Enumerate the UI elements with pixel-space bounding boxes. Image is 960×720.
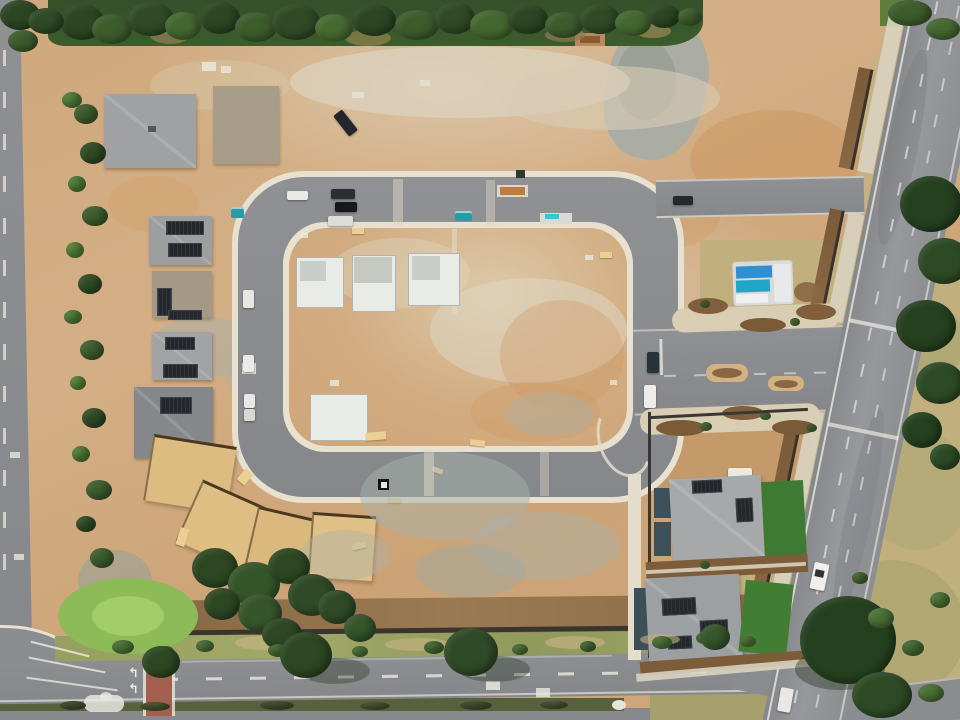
solar-panel xyxy=(165,337,195,350)
tree xyxy=(344,614,376,642)
lumber-pile xyxy=(237,468,254,485)
median-shrub xyxy=(140,702,170,711)
tree xyxy=(142,646,180,678)
median-shrub xyxy=(260,701,294,710)
solar-panel xyxy=(692,479,723,494)
vehicle xyxy=(673,196,693,205)
vehicle xyxy=(243,355,254,372)
shrub xyxy=(86,480,112,500)
tree xyxy=(896,300,956,352)
turn-arrow xyxy=(128,678,144,690)
lane-arrow xyxy=(10,452,20,458)
porta-potty xyxy=(455,211,472,221)
tree xyxy=(435,2,475,34)
gray-wash xyxy=(505,392,595,436)
median-shrub xyxy=(60,701,86,710)
gore-line xyxy=(26,677,117,692)
vehicle xyxy=(647,352,659,373)
lane-arrow xyxy=(14,554,24,560)
lumber-pile xyxy=(366,431,387,440)
shrub xyxy=(62,92,82,108)
shrub xyxy=(76,516,96,532)
debris xyxy=(420,80,430,86)
shrub xyxy=(196,640,214,652)
utility-box xyxy=(516,170,525,178)
concrete-pad xyxy=(310,394,368,441)
debris xyxy=(610,380,617,385)
tree xyxy=(204,588,240,620)
chimney xyxy=(148,126,156,132)
tree xyxy=(615,10,651,36)
house-framing xyxy=(213,86,279,164)
tree xyxy=(444,628,498,676)
site-objects-layer xyxy=(0,0,960,720)
shrub xyxy=(80,142,106,164)
lumber-pile xyxy=(352,228,364,234)
tree xyxy=(165,12,201,40)
shrub xyxy=(90,548,114,568)
shrub xyxy=(66,242,84,258)
shrub xyxy=(918,684,944,702)
shrub xyxy=(112,640,134,654)
shrub xyxy=(82,408,106,428)
tree xyxy=(900,176,960,232)
mulch-mound xyxy=(794,282,820,302)
tree xyxy=(888,0,932,26)
tree xyxy=(200,2,240,34)
debris xyxy=(330,380,339,386)
shrub xyxy=(352,646,368,657)
canopy-panel xyxy=(773,264,791,303)
median-mulch xyxy=(712,368,742,378)
road-stencil xyxy=(486,681,500,690)
debris xyxy=(202,62,216,71)
canopy-stripe-white xyxy=(736,293,768,303)
debris xyxy=(585,255,593,260)
driveway-apron xyxy=(393,179,403,226)
pad-shade xyxy=(354,257,392,283)
tree xyxy=(395,10,439,40)
dry-patch xyxy=(545,636,605,649)
tree xyxy=(92,14,132,44)
solar-panel xyxy=(168,310,202,320)
tree xyxy=(916,362,960,404)
tree xyxy=(902,412,942,448)
mulch-bed xyxy=(796,304,836,320)
shrub xyxy=(868,608,894,628)
vehicle xyxy=(333,109,358,136)
shrub xyxy=(806,424,817,432)
vehicle xyxy=(777,687,794,713)
shrub xyxy=(82,206,108,226)
mulch-bed xyxy=(740,318,786,332)
garage-roof xyxy=(654,522,671,556)
driveway-apron xyxy=(424,449,434,496)
median-nose xyxy=(612,700,626,710)
median-shrub xyxy=(460,701,492,710)
shrub xyxy=(652,636,672,649)
driveway-apron xyxy=(486,180,495,226)
debris xyxy=(300,233,308,238)
shrub xyxy=(72,446,90,462)
painted-island xyxy=(84,695,124,712)
tree xyxy=(648,4,680,28)
tree xyxy=(918,238,960,284)
tree xyxy=(315,14,353,42)
garage-roof xyxy=(654,488,671,518)
shrub xyxy=(70,376,86,390)
shrub xyxy=(68,176,86,192)
solar-panel xyxy=(662,597,697,616)
shrub xyxy=(700,300,710,308)
tree xyxy=(8,30,38,52)
shrub xyxy=(700,422,712,431)
house-roof xyxy=(645,574,743,663)
vehicle xyxy=(244,409,255,421)
shrub xyxy=(852,572,868,584)
solar-panel xyxy=(166,221,204,235)
gray-wash xyxy=(300,530,390,580)
solar-panel xyxy=(735,498,753,523)
tree xyxy=(580,4,620,34)
mulch-bed xyxy=(656,420,706,436)
shrub xyxy=(930,592,950,608)
lawn-patch-light xyxy=(92,596,164,636)
vehicle xyxy=(244,394,255,408)
pad-shade xyxy=(300,261,326,281)
solar-panel xyxy=(163,364,198,378)
tree xyxy=(678,8,702,26)
shrub xyxy=(64,310,82,324)
tree xyxy=(235,12,277,42)
tree xyxy=(852,672,912,718)
tree xyxy=(926,18,960,40)
tree xyxy=(545,12,583,38)
tree xyxy=(272,4,320,40)
tree xyxy=(352,4,396,36)
shrub xyxy=(700,561,710,569)
shrub xyxy=(78,274,102,294)
shrub xyxy=(424,641,444,654)
vehicle xyxy=(331,189,355,199)
shrub xyxy=(580,641,596,652)
tree xyxy=(280,632,332,678)
lawn xyxy=(761,480,807,560)
shrub xyxy=(80,340,104,360)
tree xyxy=(700,624,730,650)
tree xyxy=(470,10,514,40)
median-shrub xyxy=(540,701,568,709)
porta-potty xyxy=(231,207,244,218)
canopy-stripe-blue xyxy=(736,265,772,278)
lumber-pile xyxy=(470,439,486,447)
pad-shade xyxy=(412,256,440,280)
road-stencil xyxy=(536,688,550,697)
vehicle xyxy=(243,290,254,308)
median-shrub xyxy=(360,702,390,710)
canopy-stripe-blue xyxy=(736,279,770,292)
shrub xyxy=(512,644,528,655)
vehicle xyxy=(287,191,308,200)
gray-wash xyxy=(415,545,525,597)
gore-line xyxy=(29,657,106,674)
solar-panel xyxy=(168,243,202,257)
debris xyxy=(221,66,231,73)
trailer-cargo xyxy=(500,187,525,195)
vehicle xyxy=(335,202,357,212)
tree xyxy=(508,4,548,34)
shrub xyxy=(74,104,98,124)
lumber-pile xyxy=(600,252,612,258)
solar-panel xyxy=(160,397,192,414)
debris xyxy=(352,92,364,98)
vehicle xyxy=(644,385,656,408)
shrub xyxy=(902,640,924,656)
utility-marker-core xyxy=(381,482,387,488)
median-mulch xyxy=(774,380,798,388)
shrub xyxy=(790,318,800,326)
shrub xyxy=(740,636,756,647)
tree xyxy=(930,444,960,470)
aerial-construction-site-photo xyxy=(0,0,960,720)
tree xyxy=(28,8,64,34)
lumber-stack-cyan xyxy=(545,214,559,219)
vehicle xyxy=(328,216,353,226)
driveway-apron xyxy=(540,450,549,496)
